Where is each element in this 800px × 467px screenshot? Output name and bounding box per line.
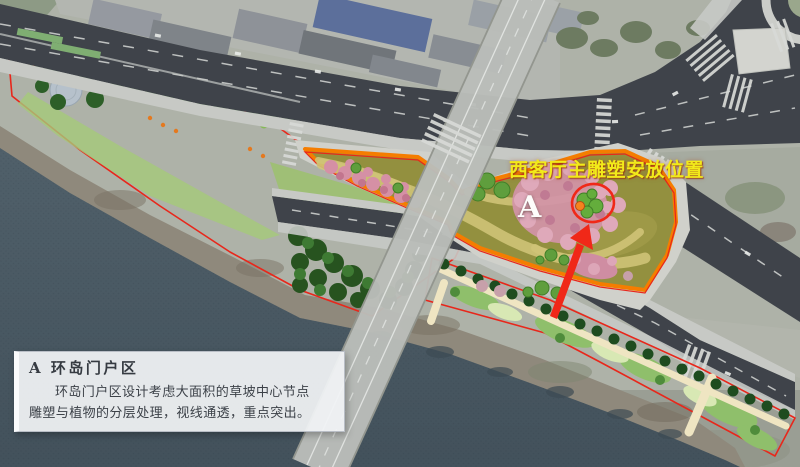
sculpture-marker-dot — [576, 202, 585, 211]
legend-description: 环岛门户区设计考虑大面积的草坡中心节点雕塑与植物的分层处理，视线通透，重点突出。 — [29, 383, 321, 425]
legend-box: A 环岛门户区 环岛门户区设计考虑大面积的草坡中心节点雕塑与植物的分层处理，视线… — [14, 351, 345, 432]
zone-a-letter: A — [518, 190, 541, 225]
legend-title: A 环岛门户区 — [29, 357, 332, 378]
sculpture-location-label: 西客厅主雕塑安放位置 — [509, 155, 699, 182]
site-plan-screenshot: 西客厅主雕塑安放位置 A A 环岛门户区 环岛门户区设计考虑大面积的草坡中心节点… — [0, 0, 800, 467]
